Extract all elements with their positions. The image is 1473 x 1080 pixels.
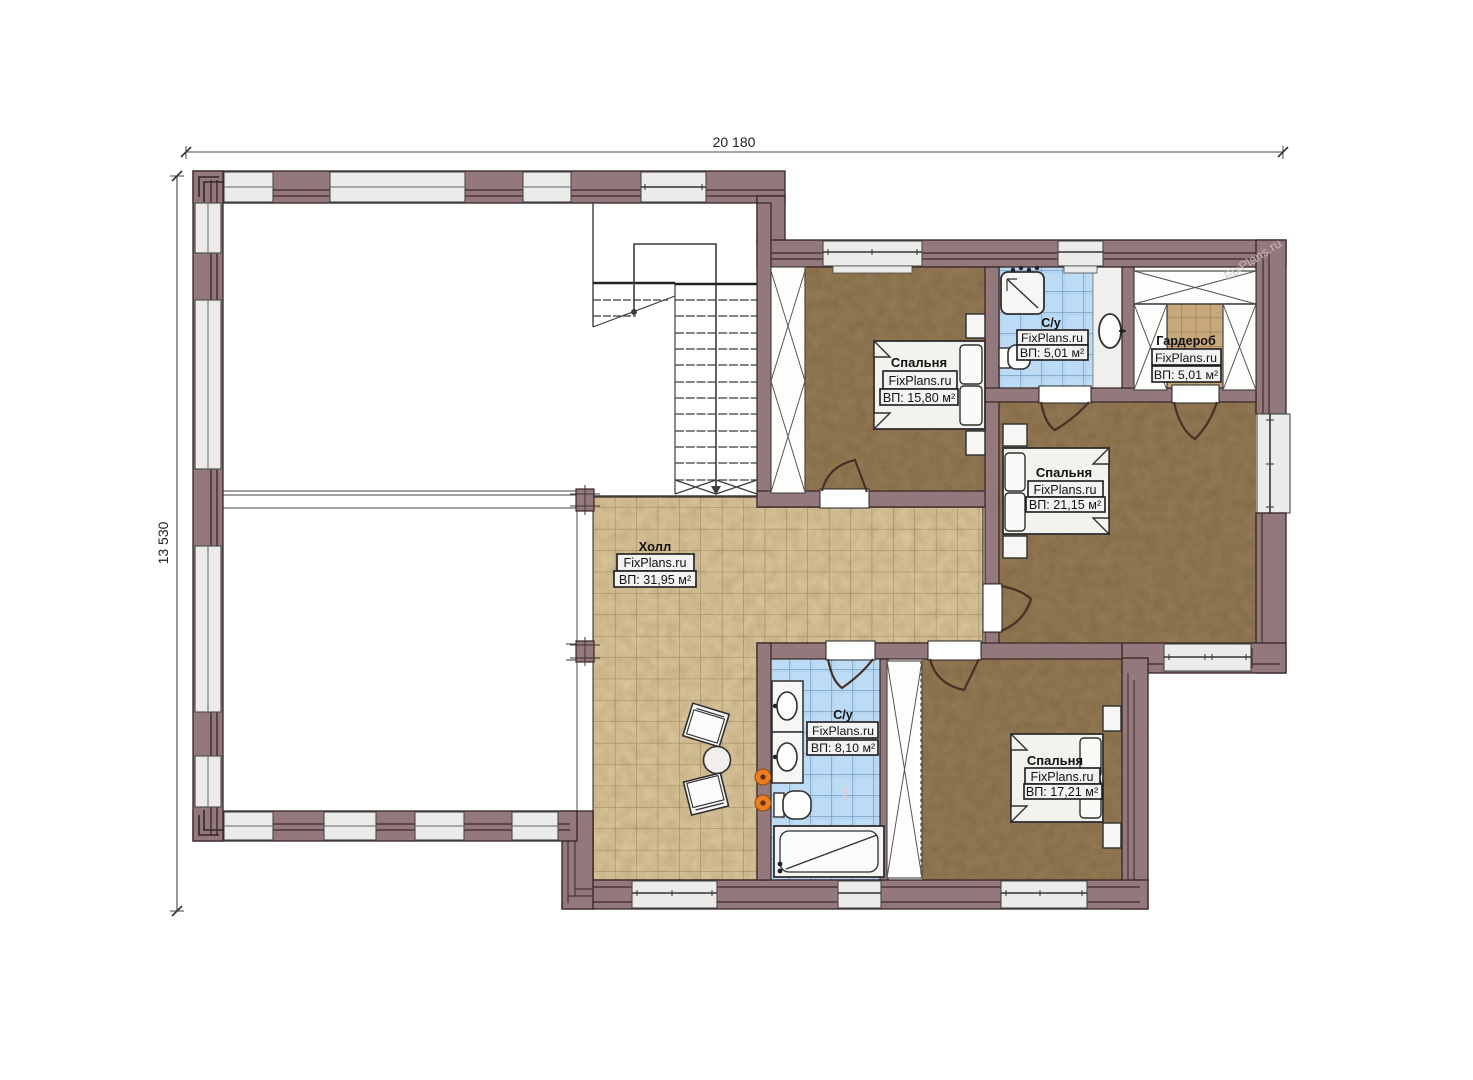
svg-text:Спальня: Спальня <box>1027 753 1083 768</box>
svg-text:FixPlans.ru: FixPlans.ru <box>1031 770 1094 784</box>
svg-text:20 180: 20 180 <box>713 134 756 150</box>
svg-text:ВП: 31,95 м²: ВП: 31,95 м² <box>619 573 691 587</box>
svg-text:ВП: 8,10 м²: ВП: 8,10 м² <box>811 741 875 755</box>
svg-text:ВП: 5,01 м²: ВП: 5,01 м² <box>1020 346 1084 360</box>
svg-text:С/у: С/у <box>1041 316 1061 330</box>
svg-text:ВП: 15,80 м²: ВП: 15,80 м² <box>883 391 955 405</box>
svg-text:ВП: 21,15 м²: ВП: 21,15 м² <box>1029 498 1101 512</box>
svg-text:ВП: 17,21 м²: ВП: 17,21 м² <box>1026 785 1098 799</box>
svg-text:13 530: 13 530 <box>155 521 171 564</box>
svg-text:FixPlans.ru: FixPlans.ru <box>812 724 874 738</box>
svg-text:ВП: 5,01 м²: ВП: 5,01 м² <box>1154 368 1218 382</box>
svg-text:Гардероб: Гардероб <box>1156 334 1216 348</box>
svg-text:FixPlans.ru: FixPlans.ru <box>1021 331 1083 345</box>
svg-text:Спальня: Спальня <box>1036 465 1092 480</box>
svg-text:Спальня: Спальня <box>891 355 947 370</box>
svg-text:FixPlans.ru: FixPlans.ru <box>1034 483 1097 497</box>
svg-text:Холл: Холл <box>639 539 672 554</box>
svg-text:С/у: С/у <box>833 708 853 722</box>
svg-text:FixPlans.ru: FixPlans.ru <box>1155 351 1217 365</box>
svg-text:FixPlans.ru: FixPlans.ru <box>889 374 952 388</box>
svg-text:FixPlans.ru: FixPlans.ru <box>624 556 687 570</box>
